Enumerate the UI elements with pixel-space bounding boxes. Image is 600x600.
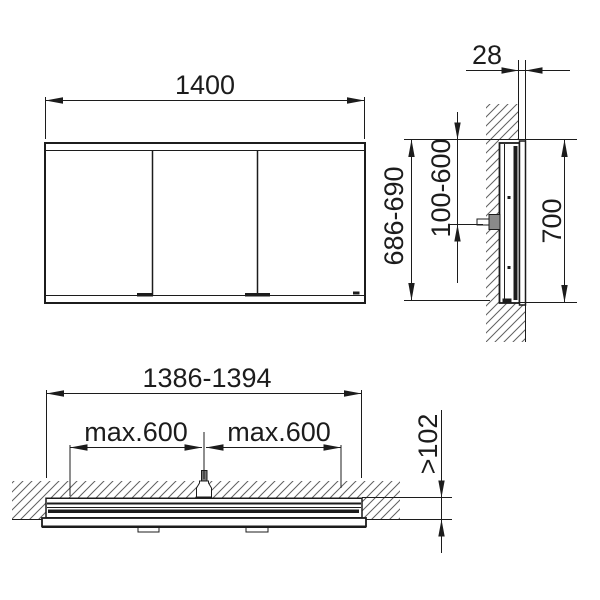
technical-drawing-page: 1400 28 xyxy=(0,0,600,600)
front-width-label: 1400 xyxy=(175,70,235,100)
arrowhead xyxy=(526,67,543,73)
niche-height-dimension: 686-690 xyxy=(379,140,415,301)
arrowhead xyxy=(438,481,444,498)
cabinet-outline xyxy=(45,143,365,303)
bottom-fitting xyxy=(503,299,512,303)
cabinet-height-label: 700 xyxy=(537,198,567,243)
arrowhead xyxy=(438,520,444,537)
fixing-left-label: max.600 xyxy=(84,417,188,447)
fixing-right-label: max.600 xyxy=(227,417,331,447)
mirror-door-slab xyxy=(514,146,518,300)
arrowhead xyxy=(47,390,65,396)
brand-mark xyxy=(353,292,360,295)
door-bottom-tab xyxy=(137,293,153,297)
connection-height-label: 100-600 xyxy=(426,138,456,237)
frame-tab xyxy=(246,528,268,533)
arrowhead xyxy=(561,285,567,303)
frame-tab xyxy=(138,528,159,533)
arrowhead xyxy=(408,140,414,158)
side-view: 28 686-690 xyxy=(379,40,577,342)
mirror-door-slab xyxy=(48,510,359,514)
arrowhead xyxy=(454,123,460,140)
arrowhead xyxy=(561,140,567,158)
technical-drawing-canvas: 1400 28 xyxy=(0,0,600,600)
connection-height-dimension: 100-600 xyxy=(426,112,483,283)
front-view: 1400 xyxy=(45,70,365,303)
hinge-mark xyxy=(508,196,511,199)
niche-depth-dimension: >102 xyxy=(413,410,452,553)
arrowhead xyxy=(46,97,64,104)
cabinet-side-section xyxy=(477,141,526,305)
front-frame xyxy=(520,141,526,305)
front-width-dimension: 1400 xyxy=(46,70,365,139)
bracket-body xyxy=(197,481,212,497)
wall-hatch-left xyxy=(12,498,46,519)
hinge-mark xyxy=(508,266,511,269)
plan-view: 1386-1394 max.600 max.600 >102 xyxy=(12,363,452,553)
cabinet-front xyxy=(45,143,365,303)
wall-hatch-right xyxy=(362,498,400,519)
connection-box xyxy=(489,215,500,230)
cabinet-height-dimension: 700 xyxy=(537,140,568,303)
arrowhead xyxy=(347,97,365,104)
wall-hatch-above xyxy=(486,104,519,140)
arrowhead xyxy=(408,283,414,301)
niche-depth-label: >102 xyxy=(413,414,443,475)
wall-hatch-below xyxy=(486,303,525,342)
niche-height-label: 686-690 xyxy=(379,166,409,265)
front-frame xyxy=(42,518,366,527)
door-bottom-tab xyxy=(245,293,270,297)
cabinet-plan-section xyxy=(42,471,366,533)
arrowhead xyxy=(502,67,519,73)
arrowhead xyxy=(206,444,224,450)
protrusion-label: 28 xyxy=(472,40,502,70)
arrowhead xyxy=(344,390,362,396)
niche-width-label: 1386-1394 xyxy=(142,363,271,393)
